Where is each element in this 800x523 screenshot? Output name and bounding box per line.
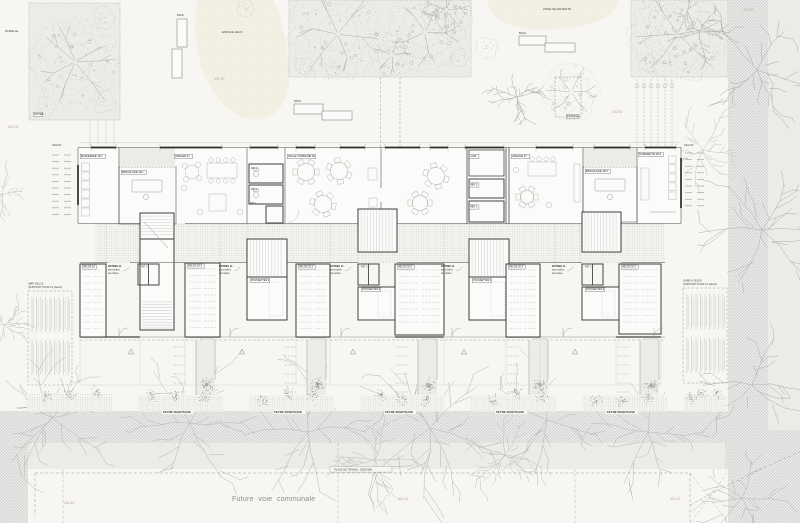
svg-text:avec boîtes: avec boîtes [330, 269, 343, 272]
svg-text:FILTRE VEGETALISE: FILTRE VEGETALISE [274, 410, 302, 414]
svg-text:FILTRE VEGETALISE: FILTRE VEGETALISE [163, 410, 191, 414]
svg-text:ABRI VELOS: ABRI VELOS [28, 282, 44, 286]
svg-text:(SUPPORT POUR 21 places): (SUPPORT POUR 21 places) [28, 285, 62, 289]
svg-text:ENTREE 11: ENTREE 11 [552, 265, 566, 268]
svg-text:aux lettres: aux lettres [441, 272, 452, 275]
svg-text:ENTREE 11: ENTREE 11 [219, 265, 233, 268]
svg-text:POUSSETTES 9: POUSSETTES 9 [362, 288, 381, 291]
svg-text:BRICOLAGE 18.5: BRICOLAGE 18.5 [586, 169, 608, 173]
svg-text:PST 2: PST 2 [141, 267, 148, 269]
svg-text:aux lettres: aux lettres [219, 272, 230, 275]
svg-text:WC 1: WC 1 [251, 167, 258, 170]
svg-text:KIOSQUE: KIOSQUE [567, 114, 579, 118]
svg-text:VELOS 10: VELOS 10 [83, 266, 95, 269]
svg-text:402.50: 402.50 [612, 110, 622, 114]
svg-text:avec boîtes: avec boîtes [552, 269, 565, 272]
svg-text:VELOS 20.3: VELOS 20.3 [188, 265, 203, 268]
svg-text:BANC: BANC [294, 99, 301, 103]
svg-text:VELOS 20.3: VELOS 20.3 [509, 266, 524, 269]
svg-text:BRICOLAGE 18.1: BRICOLAGE 18.1 [122, 170, 144, 174]
svg-text:ATELIER 27: ATELIER 27 [512, 154, 527, 158]
svg-text:ENTREE 11: ENTREE 11 [330, 265, 344, 268]
svg-text:REF 1: REF 1 [470, 205, 478, 209]
svg-text:VELOS 20.3: VELOS 20.3 [622, 266, 637, 269]
svg-text:avec boîtes: avec boîtes [441, 269, 454, 272]
svg-text:avec boîtes: avec boîtes [108, 269, 121, 272]
svg-text:FILTRE VEGETALISE: FILTRE VEGETALISE [496, 410, 524, 414]
svg-text:402.00: 402.00 [8, 125, 18, 129]
svg-text:PST 1: PST 1 [250, 202, 257, 205]
svg-text:ENTREE 11: ENTREE 11 [441, 265, 455, 268]
svg-text:VELOS: VELOS [52, 143, 61, 147]
svg-text:MORELLE: MORELLE [5, 29, 19, 33]
svg-text:ENTREE 11: ENTREE 11 [108, 265, 122, 268]
svg-text:BANC: BANC [177, 13, 184, 17]
svg-text:ATELIER 27: ATELIER 27 [175, 154, 190, 158]
svg-text:(SUPPORT POUR 21 places): (SUPPORT POUR 21 places) [683, 282, 717, 286]
svg-text:402.00: 402.00 [743, 8, 753, 12]
svg-text:VELOS: VELOS [684, 143, 693, 147]
svg-text:401.50: 401.50 [64, 501, 74, 505]
svg-text:NOYER: NOYER [34, 112, 43, 116]
svg-text:402.30: 402.30 [398, 497, 408, 501]
svg-text:aux lettres: aux lettres [552, 272, 563, 275]
svg-text:VELOS 20.3: VELOS 20.3 [398, 266, 413, 269]
svg-text:402.20: 402.20 [670, 497, 680, 501]
svg-text:PLACE DE TRAVAIL - 50/50 MIN: PLACE DE TRAVAIL - 50/50 MIN [334, 468, 372, 472]
svg-text:POUSSETTES 9: POUSSETTES 9 [251, 279, 270, 282]
svg-text:ZONE DE DETENTE: ZONE DE DETENTE [543, 7, 571, 11]
svg-text:BANC: BANC [519, 31, 526, 35]
svg-text:Future voie communale: Future voie communale [232, 496, 315, 503]
svg-text:avec boîtes: avec boîtes [219, 269, 232, 272]
svg-text:PST 2: PST 2 [361, 267, 368, 269]
svg-text:PST 2: PST 2 [585, 267, 592, 269]
svg-text:REF 2: REF 2 [470, 183, 478, 187]
svg-text:WC 2: WC 2 [251, 188, 258, 191]
svg-text:POUSSETTES 9: POUSSETTES 9 [586, 288, 605, 291]
svg-text:aux lettres: aux lettres [330, 272, 341, 275]
svg-text:CUIS.: CUIS. [470, 154, 477, 158]
svg-text:FILTRE VEGETALISE: FILTRE VEGETALISE [385, 410, 413, 414]
svg-text:BUANDERIE 18.1: BUANDERIE 18.1 [81, 154, 103, 158]
svg-text:ESPACE JEUX: ESPACE JEUX [222, 30, 242, 34]
svg-text:aux lettres: aux lettres [108, 272, 119, 275]
svg-text:POUSSETTES 9: POUSSETTES 9 [473, 279, 492, 282]
svg-text:SALLE COMMUNE 52: SALLE COMMUNE 52 [288, 154, 316, 158]
svg-text:GARE A VELOS: GARE A VELOS [683, 279, 702, 283]
svg-text:402.50: 402.50 [214, 77, 224, 81]
svg-text:SUPERETTE 49.5: SUPERETTE 49.5 [639, 152, 662, 156]
svg-text:FILTRE VEGETALISE: FILTRE VEGETALISE [607, 410, 635, 414]
svg-text:VELOS 20.3: VELOS 20.3 [299, 266, 314, 269]
